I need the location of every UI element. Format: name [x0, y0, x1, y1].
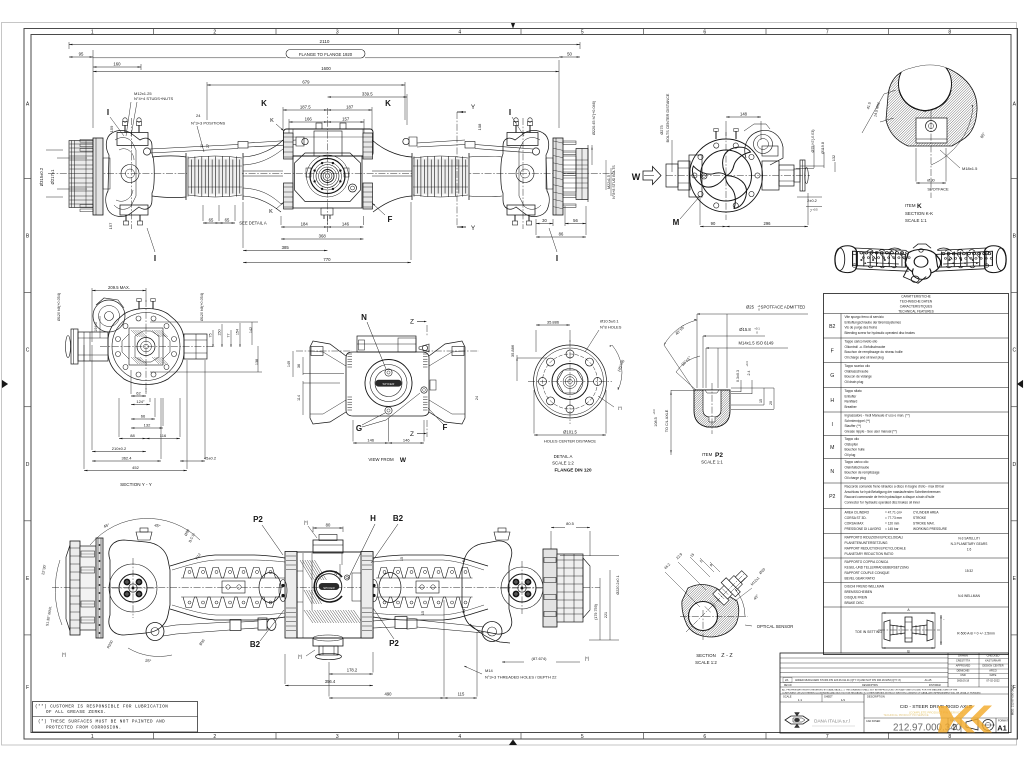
svg-text:5: 5	[581, 734, 584, 740]
svg-text:80.5: 80.5	[566, 521, 575, 526]
svg-text:BEVEL GEAR RATIO: BEVEL GEAR RATIO	[845, 577, 876, 581]
svg-text:F: F	[388, 215, 393, 224]
svg-text:Entluftungschraube der Bremssy: Entluftungschraube der Bremssystemes	[845, 320, 902, 324]
svg-text:DRAWN: DRAWN	[958, 654, 968, 658]
svg-text:Ø275: Ø275	[660, 125, 664, 134]
svg-text:209.5 MAX.: 209.5 MAX.	[108, 285, 130, 290]
svg-text:CARATTERISTICHE: CARATTERISTICHE	[901, 295, 931, 299]
svg-text:50: 50	[567, 51, 572, 56]
svg-text:Y: Y	[471, 104, 476, 111]
svg-text:88: 88	[130, 433, 135, 438]
svg-text:95: 95	[79, 51, 84, 56]
svg-text:2: 2	[213, 734, 216, 740]
svg-text:Oleinfullschraube: Oleinfullschraube	[845, 465, 870, 469]
svg-text:Ø119.8: Ø119.8	[821, 142, 825, 154]
svg-text:157: 157	[342, 116, 350, 121]
svg-text:VIEW FROM: VIEW FROM	[368, 457, 394, 462]
svg-text:187.5: 187.5	[300, 104, 311, 109]
svg-text:P2: P2	[389, 639, 399, 648]
svg-text:15: 15	[759, 399, 763, 403]
svg-text:Oil plug: Oil plug	[845, 453, 856, 457]
svg-text:3: 3	[336, 29, 339, 35]
svg-text:ADDED MUDGUARD STUDS P/N 223.0: ADDED MUDGUARD STUDS P/N 223.06.011.01 (…	[795, 679, 901, 682]
svg-text:B2: B2	[393, 514, 404, 523]
svg-text:+0.4: +0.4	[745, 361, 749, 367]
svg-text:STROKE: STROKE	[913, 516, 926, 520]
svg-text:DISCHI FRENO WELLMAN: DISCHI FRENO WELLMAN	[845, 584, 885, 588]
svg-text:(87.674): (87.674)	[532, 656, 548, 661]
svg-text:MOD. 212-97-000-340-0: MOD. 212-97-000-340-0	[1011, 684, 1015, 715]
svg-text:N°8+8 STUD BOLTS: N°8+8 STUD BOLTS	[612, 165, 616, 199]
svg-text:TECHNICAL FEATURES: TECHNICAL FEATURES	[898, 309, 934, 313]
svg-text:W: W	[400, 457, 407, 464]
svg-text:Tappo scarico olio: Tappo scarico olio	[845, 364, 871, 368]
svg-text:4: 4	[458, 734, 461, 740]
svg-text:APPROVED: APPROVED	[956, 664, 971, 668]
svg-text:679: 679	[302, 79, 310, 84]
svg-text:TECHNISCHE DATEN: TECHNISCHE DATEN	[900, 300, 933, 304]
svg-text:SCALE 1:1: SCALE 1:1	[905, 218, 927, 223]
svg-text:M18x1.5: M18x1.5	[962, 166, 978, 171]
svg-text:2±0.2: 2±0.2	[807, 198, 817, 203]
svg-text:30: 30	[542, 218, 547, 223]
svg-text:6: 6	[703, 734, 706, 740]
svg-text:56: 56	[573, 218, 578, 223]
svg-text:COMPONENT OR UNIT HEREIN ILLUS: COMPONENT OR UNIT HEREIN ILLUSTRATED AND…	[782, 691, 981, 694]
svg-text:Ø217±1: Ø217±1	[50, 169, 55, 185]
svg-text:STROKE MAX.: STROKE MAX.	[913, 522, 935, 526]
svg-text:B2: B2	[250, 640, 261, 649]
svg-text:Tappo carico olio: Tappo carico olio	[845, 460, 869, 464]
svg-text:CRESTITTA: CRESTITTA	[956, 659, 970, 663]
svg-text:1:6: 1:6	[967, 548, 972, 552]
svg-text:6: 6	[703, 29, 706, 35]
svg-text:SCALE 1:1: SCALE 1:1	[701, 460, 723, 465]
svg-text:75: 75	[209, 333, 213, 337]
svg-text:CORSA MAX: CORSA MAX	[845, 522, 865, 526]
svg-text:149: 149	[287, 361, 291, 367]
svg-text:45±0.2: 45±0.2	[204, 456, 217, 461]
svg-text:80: 80	[326, 522, 331, 527]
svg-text:CORSA ST 3D-: CORSA ST 3D-	[845, 516, 867, 520]
svg-text:Stauffer (**): Stauffer (**)	[845, 424, 862, 428]
svg-text:SCALE 1:2: SCALE 1:2	[552, 461, 574, 466]
svg-text:SECTION Y - Y: SECTION Y - Y	[120, 482, 152, 487]
svg-text:PLANETENUNTERSETZUNG: PLANETENUNTERSETZUNG	[845, 541, 889, 545]
svg-text:N°3+3 POSITIONS: N°3+3 POSITIONS	[191, 121, 225, 126]
svg-text:Oil charge and oil level plug: Oil charge and oil level plug	[845, 356, 884, 360]
svg-text:Schmiernippel (**): Schmiernippel (**)	[845, 419, 871, 423]
svg-text:N°4+4 STUDS+NUTS: N°4+4 STUDS+NUTS	[134, 96, 173, 101]
svg-text:Ø15.8: Ø15.8	[739, 327, 751, 332]
svg-text:PROTECTED FROM CORROSION.: PROTECTED FROM CORROSION.	[46, 725, 122, 730]
svg-text:ITEM: ITEM	[905, 203, 916, 208]
svg-text:M: M	[830, 445, 834, 451]
svg-text:ITEM: ITEM	[702, 452, 713, 457]
svg-text:W: W	[632, 172, 641, 182]
svg-text:A1: A1	[997, 724, 1007, 733]
svg-text:Reniflard: Reniflard	[845, 400, 858, 404]
svg-text:2110: 2110	[320, 39, 330, 44]
svg-text:TO C/L AXLE: TO C/L AXLE	[665, 409, 669, 432]
svg-text:15: 15	[400, 557, 404, 561]
svg-text:Connector for hydraulic operat: Connector for hydraulic operated disc br…	[845, 501, 921, 505]
svg-text:Bouchon de remplissage du nive: Bouchon de remplissage du niveau huille	[845, 350, 903, 354]
svg-text:Anschluss fur hydr.Betatigung: Anschluss fur hydr.Betatigung der nassla…	[845, 490, 941, 494]
svg-text:356.4: 356.4	[325, 679, 336, 684]
svg-text:Boucon de vidange: Boucon de vidange	[845, 375, 873, 379]
svg-text:385: 385	[282, 245, 290, 250]
svg-text:1600: 1600	[321, 66, 331, 71]
svg-text:SHEET: SHEET	[824, 695, 833, 699]
svg-text:I: I	[832, 422, 833, 428]
svg-text:KASTURKAR: KASTURKAR	[985, 659, 1001, 663]
svg-text:138: 138	[255, 359, 259, 365]
svg-text:210±0.2: 210±0.2	[112, 446, 127, 451]
svg-text:AREA CILINDRO: AREA CILINDRO	[845, 510, 870, 514]
svg-text:Z: Z	[410, 431, 414, 438]
svg-text:132: 132	[144, 422, 151, 427]
svg-text:KEGEL-UND TELLERRADUEBERSETZUN: KEGEL-UND TELLERRADUEBERSETZUNG	[845, 565, 910, 569]
svg-text:K: K	[270, 118, 274, 124]
svg-text:07-02-2022: 07-02-2022	[986, 679, 1000, 683]
svg-text:Breather: Breather	[845, 405, 858, 409]
svg-text:FLANGE DIN 120: FLANGE DIN 120	[554, 468, 591, 473]
svg-text:296: 296	[764, 221, 772, 226]
svg-text:194.5: 194.5	[94, 322, 98, 332]
svg-text:Ø315±0.2: Ø315±0.2	[39, 167, 44, 186]
svg-text:+0.3: +0.3	[652, 409, 656, 415]
svg-text:23: 23	[334, 571, 338, 575]
svg-text:65: 65	[225, 217, 230, 222]
svg-text:Oil drain plug: Oil drain plug	[845, 380, 864, 384]
svg-text:CHECKED: CHECKED	[987, 654, 1000, 658]
svg-text:Y: Y	[471, 225, 476, 232]
svg-text:Bleeding screw for hydraulic o: Bleeding screw for hydraulic operated di…	[845, 331, 916, 335]
svg-text:RAPPORT COUPLE CONIQUE: RAPPORT COUPLE CONIQUE	[845, 571, 890, 575]
svg-text:←: ←	[943, 617, 946, 621]
svg-text:N: N	[830, 469, 834, 475]
svg-text:Ø30: Ø30	[927, 177, 935, 182]
svg-text:A1.A5: A1.A5	[925, 679, 932, 682]
svg-text:1/1: 1/1	[841, 698, 846, 702]
svg-text:62: 62	[136, 390, 141, 395]
svg-text:N°8 HOLES: N°8 HOLES	[600, 324, 622, 329]
svg-text:114: 114	[297, 395, 301, 401]
svg-text:142: 142	[249, 327, 253, 333]
svg-text:115: 115	[458, 692, 465, 697]
svg-text:Vite spurgo freno di servizio: Vite spurgo freno di servizio	[845, 315, 885, 319]
svg-text:000109.18: 000109.18	[957, 679, 970, 683]
svg-text:35.886: 35.886	[547, 319, 560, 324]
svg-text:SPICER: SPICER	[323, 586, 335, 590]
svg-text:FORMAT: FORMAT	[998, 720, 1008, 723]
svg-text:Vis de purge des freins: Vis de purge des freins	[845, 326, 878, 330]
svg-text:146: 146	[342, 221, 350, 226]
svg-text:= 47.71 cm²: = 47.71 cm²	[885, 510, 902, 514]
svg-text:Raccord commande de frein hydr: Raccord commande de frein hydraulique a …	[845, 495, 935, 499]
svg-text:178.2: 178.2	[347, 668, 358, 673]
svg-text:BRAKE DISC: BRAKE DISC	[845, 601, 865, 605]
svg-text:M14: M14	[485, 668, 494, 673]
svg-text:N°3+3 THREADED HOLES / DEPTH 2: N°3+3 THREADED HOLES / DEPTH 22	[485, 675, 557, 680]
svg-text:5: 5	[581, 29, 584, 35]
svg-text:RAPPORT REDUCTION EPICYCLOIDAL: RAPPORT REDUCTION EPICYCLOIDALE	[845, 547, 906, 551]
svg-text:R-500 A-B = 0 +/- 2.5mm: R-500 A-B = 0 +/- 2.5mm	[957, 632, 995, 636]
svg-text:DETAIL A: DETAIL A	[554, 454, 573, 459]
svg-text:452: 452	[132, 465, 139, 470]
svg-text:90: 90	[711, 221, 716, 226]
svg-text:SPOTFACE: SPOTFACE	[927, 187, 949, 192]
svg-text:SECTION K-K: SECTION K-K	[905, 211, 933, 216]
svg-text:146: 146	[403, 437, 410, 442]
svg-text:(*): (*)	[62, 652, 67, 657]
svg-text:K: K	[385, 99, 391, 108]
svg-text:339.5: 339.5	[362, 91, 373, 96]
svg-text:Tappo olio: Tappo olio	[845, 437, 860, 441]
svg-text:RAPPORTO RIDUZIONI EPICICLOIDA: RAPPORTO RIDUZIONI EPICICLOIDALI	[845, 535, 904, 539]
svg-text:+0.5: +0.5	[812, 208, 818, 212]
svg-text:(**) CUSTOMER IS RESPONSIBLE F: (**) CUSTOMER IS RESPONSIBLE FOR LUBRICA…	[35, 705, 168, 710]
svg-text:N-3 SATELLITI: N-3 SATELLITI	[958, 537, 979, 541]
svg-text:BOLTS CENTER DISTANCE: BOLTS CENTER DISTANCE	[666, 93, 670, 142]
svg-text:PRESSIONE DI LAVORO: PRESSIONE DI LAVORO	[845, 527, 882, 531]
svg-text:DESCRIPTION: DESCRIPTION	[862, 685, 878, 687]
svg-text:TOE IN SETTING: TOE IN SETTING	[855, 630, 882, 634]
svg-text:362.4: 362.4	[121, 455, 132, 460]
svg-text:DANA ITALIA s.r.l: DANA ITALIA s.r.l	[814, 719, 850, 724]
svg-text:Tappo carico livello olio: Tappo carico livello olio	[845, 340, 878, 344]
svg-text:N-3 PLANETARY GEARS: N-3 PLANETARY GEARS	[951, 542, 988, 546]
svg-text:H: H	[370, 514, 376, 523]
svg-text:3: 3	[336, 734, 339, 740]
svg-text:Olstopfen: Olstopfen	[845, 442, 859, 446]
svg-text:K: K	[261, 99, 267, 108]
svg-text:ALL PROPRIETARY RIGHTS RESERVE: ALL PROPRIETARY RIGHTS RESERVED BY DANA …	[782, 688, 958, 691]
svg-text:CID - STEER DRIVE RIGID AXLE: CID - STEER DRIVE RIGID AXLE	[900, 704, 973, 710]
svg-text:154: 154	[236, 329, 240, 335]
svg-text:OPTICAL SENSOR: OPTICAL SENSOR	[757, 624, 794, 629]
svg-text:SEE DETAIL A: SEE DETAIL A	[239, 221, 267, 226]
svg-text:BREMSSCHEIBEN: BREMSSCHEIBEN	[845, 590, 873, 594]
svg-text:77: 77	[227, 333, 231, 337]
svg-text:F: F	[443, 423, 448, 432]
svg-text:2: 2	[213, 29, 216, 35]
svg-text:2.4: 2.4	[747, 371, 751, 376]
svg-text:SECTION: SECTION	[696, 653, 716, 658]
svg-text:1: 1	[91, 29, 94, 35]
svg-text:24: 24	[475, 396, 479, 400]
svg-text:108.5: 108.5	[654, 417, 658, 427]
svg-text:160: 160	[113, 61, 121, 66]
svg-text:Raccordo comando freno idrauli: Raccordo comando freno idraulico a disco…	[845, 485, 946, 489]
svg-text:Olkontroll -u. Einfullschraube: Olkontroll -u. Einfullschraube	[845, 345, 886, 349]
svg-text:(*) THESE SURFACES MUST BE NOT: (*) THESE SURFACES MUST BE NOT PAINTED A…	[38, 720, 165, 725]
svg-text:F: F	[831, 348, 834, 354]
svg-text:D: D	[1012, 462, 1016, 468]
svg-text:CND: CND	[960, 673, 966, 677]
svg-text:65: 65	[209, 217, 214, 222]
svg-text:54: 54	[462, 609, 466, 613]
svg-text:SCALE: SCALE	[783, 695, 792, 699]
svg-text:DATE: DATE	[990, 673, 997, 677]
svg-text:Entlufter: Entlufter	[845, 394, 858, 398]
svg-text:WORKING PRESSURE: WORKING PRESSURE	[913, 527, 947, 531]
svg-text:1:1: 1:1	[798, 698, 803, 702]
svg-text:15:32: 15:32	[965, 569, 973, 573]
svg-text:P2: P2	[715, 452, 723, 459]
svg-text:N: N	[361, 313, 367, 322]
svg-text:D: D	[26, 462, 30, 468]
svg-text:Ø10.5±0.1: Ø10.5±0.1	[600, 319, 619, 324]
svg-text:I: I	[154, 254, 156, 263]
svg-text:SCALE 1:2: SCALE 1:2	[695, 660, 717, 665]
svg-text:I: I	[107, 108, 109, 117]
svg-text:7: 7	[826, 734, 829, 740]
svg-text:K: K	[917, 203, 922, 210]
svg-text:(*): (*)	[298, 654, 303, 659]
svg-text:(*): (*)	[304, 520, 309, 525]
svg-text:(*): (*)	[585, 656, 590, 661]
svg-text:36: 36	[297, 364, 301, 368]
svg-text:Z - Z: Z - Z	[721, 653, 733, 659]
svg-text:B2: B2	[829, 324, 835, 330]
svg-text:OF ALL GREASE ZERKS.: OF ALL GREASE ZERKS.	[46, 710, 107, 715]
svg-text:86: 86	[559, 231, 564, 236]
svg-text:157: 157	[108, 222, 113, 229]
svg-text:368: 368	[319, 233, 327, 238]
svg-text:PLANETARY REDUCTION RATIO: PLANETARY REDUCTION RATIO	[845, 552, 894, 556]
svg-text:Ø25: Ø25	[746, 305, 755, 310]
svg-text:490: 490	[385, 692, 393, 697]
svg-text:Ø101.5: Ø101.5	[563, 429, 577, 434]
svg-text:Ø120 h8(+0.054): Ø120 h8(+0.054)	[57, 293, 61, 321]
svg-text:187: 187	[346, 104, 354, 109]
svg-text:20: 20	[769, 401, 773, 405]
svg-text:8: 8	[948, 29, 951, 35]
svg-text:66: 66	[141, 413, 146, 418]
svg-text:159: 159	[109, 125, 114, 132]
svg-text:Tappo sfiato: Tappo sfiato	[845, 389, 862, 393]
svg-text:DESCRIPTION: DESCRIPTION	[867, 695, 885, 699]
svg-text:FLANGE TO FLANGE 1920: FLANGE TO FLANGE 1920	[299, 52, 353, 57]
svg-text:(179.759): (179.759)	[594, 604, 598, 620]
svg-text:ARCO: ARCO	[989, 669, 997, 673]
svg-text:Z: Z	[410, 319, 414, 326]
svg-text:REV-ID: REV-ID	[784, 685, 792, 687]
svg-text:54: 54	[462, 558, 466, 562]
svg-text:C: C	[1012, 348, 1016, 354]
svg-text:CAD KONED: CAD KONED	[866, 720, 880, 723]
svg-text:Oil charge plug: Oil charge plug	[845, 476, 867, 480]
svg-text:DEMICHEI: DEMICHEI	[957, 669, 970, 673]
svg-text:N-6 WELLMAN: N-6 WELLMAN	[958, 594, 980, 598]
svg-text:M: M	[673, 218, 680, 227]
svg-text:146: 146	[367, 437, 374, 442]
svg-text:27: 27	[206, 144, 210, 148]
svg-text:Ø220.2±0.1: Ø220.2±0.1	[616, 575, 620, 594]
svg-text:221: 221	[604, 612, 608, 618]
svg-text:770: 770	[323, 257, 331, 262]
svg-text:Ø120 h8(+0.054): Ø120 h8(+0.054)	[200, 293, 204, 321]
svg-text:P2: P2	[253, 515, 263, 524]
svg-text:M14x1.5 ISO 6149: M14x1.5 ISO 6149	[739, 341, 775, 346]
svg-text:HOLES CENTER DISTANCE: HOLES CENTER DISTANCE	[544, 439, 596, 444]
svg-text:F: F	[26, 685, 29, 691]
svg-text:CYLINDER AREA: CYLINDER AREA	[913, 510, 939, 514]
svg-text:TECHNICAL PRODUCT P/N SERVI: TECHNICAL PRODUCT P/N SERVICE	[883, 713, 928, 717]
svg-text:G: G	[830, 373, 834, 379]
svg-text:= 145 bar: = 145 bar	[885, 527, 899, 531]
svg-text:124°: 124°	[136, 399, 145, 404]
svg-text:108: 108	[477, 123, 482, 130]
svg-text:Ø220.45 h7(+0.046): Ø220.45 h7(+0.046)	[592, 100, 596, 135]
svg-text:I: I	[556, 254, 558, 263]
svg-text:166: 166	[305, 116, 313, 121]
svg-text:SPICER: SPICER	[383, 382, 395, 386]
svg-text:8: 8	[948, 734, 951, 740]
svg-text:K: K	[269, 209, 273, 215]
svg-text:Bouchon huile: Bouchon huile	[845, 448, 865, 452]
svg-text:1: 1	[91, 734, 94, 740]
svg-text:RAPPORTO COPPIA CONICA: RAPPORTO COPPIA CONICA	[845, 560, 890, 564]
svg-text:2: 2	[952, 723, 957, 732]
svg-text:Bouchon de remplissage: Bouchon de remplissage	[845, 471, 880, 475]
svg-text:4: 4	[458, 29, 461, 35]
svg-text:DESIGN CENTER: DESIGN CENTER	[982, 664, 1003, 668]
svg-text:184: 184	[301, 221, 309, 226]
svg-text:= 77.73 mm: = 77.73 mm	[885, 516, 902, 520]
svg-text:24: 24	[196, 113, 201, 118]
svg-text:148: 148	[740, 111, 748, 116]
svg-text:Grease nipple - See user manua: Grease nipple - See user manual (**)	[845, 430, 897, 434]
svg-text:(*): (*)	[618, 405, 623, 410]
svg-text:DISQUE FREIN: DISQUE FREIN	[845, 596, 868, 600]
svg-text:SPOTFACE ADMITTED: SPOTFACE ADMITTED	[761, 305, 806, 310]
svg-text:10: 10	[200, 144, 204, 148]
svg-text:Olablasschraube: Olablasschraube	[845, 369, 869, 373]
svg-text:35.886: 35.886	[510, 344, 515, 357]
svg-text:P2: P2	[829, 494, 835, 500]
svg-text:2/1: 2/1	[785, 678, 789, 682]
svg-text:132: 132	[832, 155, 836, 161]
svg-text:0.3±0.3: 0.3±0.3	[736, 370, 740, 382]
svg-text:C: C	[26, 348, 30, 354]
svg-text:M22x1.5: M22x1.5	[607, 175, 611, 189]
svg-text:G: G	[356, 424, 362, 433]
svg-text:CARACTERISTIQUES: CARACTERISTIQUES	[900, 305, 932, 309]
svg-text:150: 150	[218, 329, 222, 335]
svg-text:15: 15	[421, 611, 425, 615]
svg-text:Ingrassatore - Vedi Manuale d': Ingrassatore - Vedi Manuale d' uso e man…	[845, 414, 910, 418]
svg-text:H: H	[830, 398, 834, 404]
svg-text:Ø75 h7(-0.03): Ø75 h7(-0.03)	[811, 130, 815, 153]
svg-text:INST/DRAF: INST/DRAF	[929, 684, 942, 687]
svg-text:7: 7	[826, 29, 829, 35]
svg-text:= 120 mm: = 120 mm	[885, 522, 900, 526]
svg-text:I: I	[509, 108, 511, 117]
